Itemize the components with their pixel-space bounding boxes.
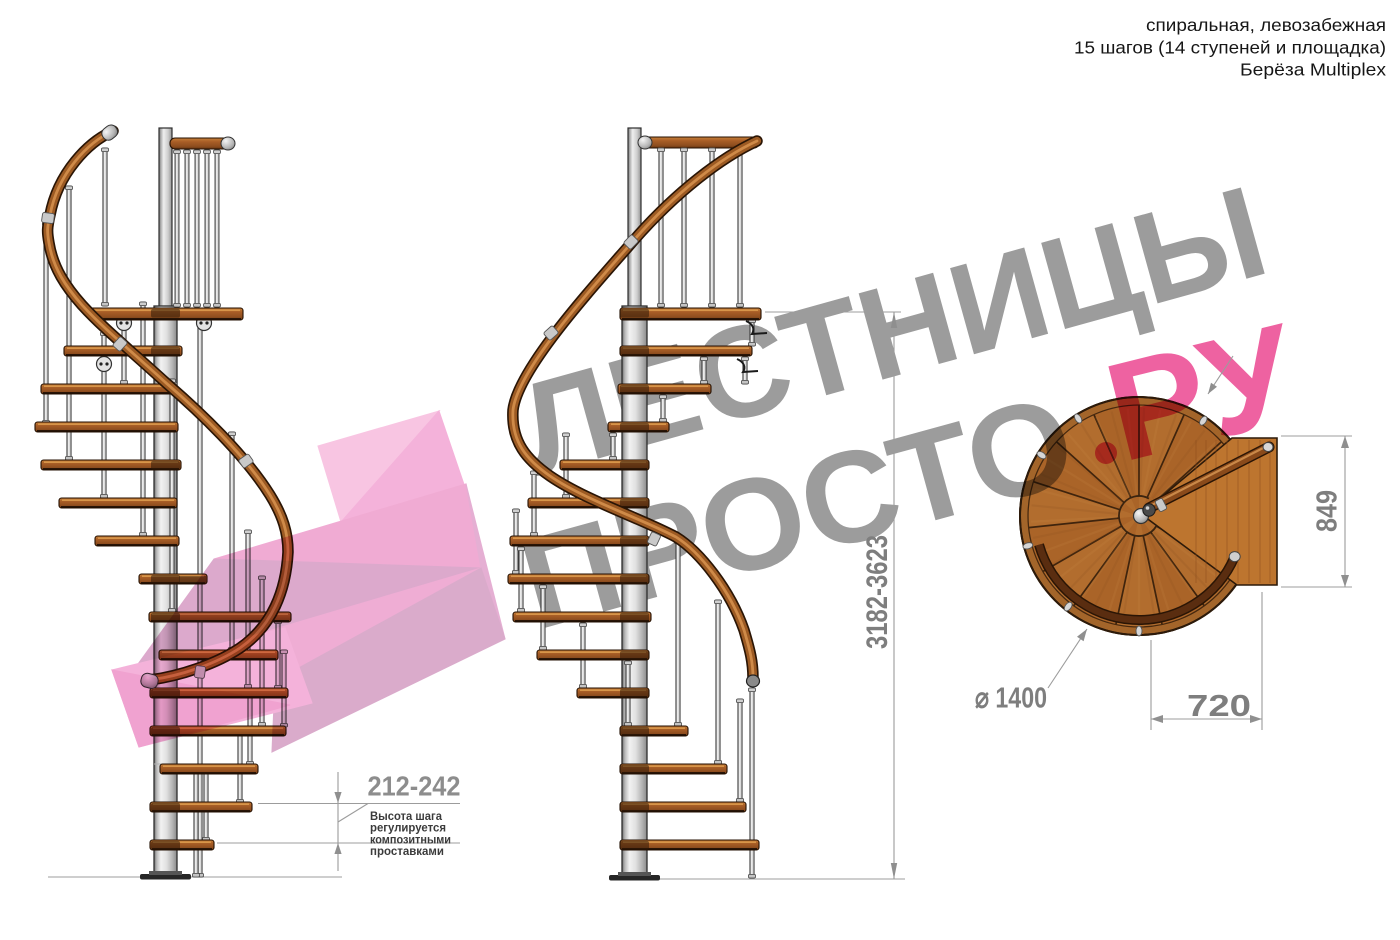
- svg-text:спиральная, левозабежная: спиральная, левозабежная: [1146, 15, 1386, 35]
- svg-text:15 шагов (14 ступеней и площад: 15 шагов (14 ступеней и площадка): [1074, 37, 1386, 57]
- svg-text:3182-3623: 3182-3623: [861, 535, 894, 649]
- svg-text:⌀ 1400: ⌀ 1400: [975, 683, 1047, 715]
- svg-text:212-242: 212-242: [368, 770, 461, 801]
- svg-text:849: 849: [1312, 490, 1344, 532]
- svg-text:720: 720: [1187, 688, 1251, 723]
- svg-text:проставками: проставками: [370, 844, 444, 858]
- svg-text:Берёза Multiplex: Берёза Multiplex: [1240, 60, 1386, 80]
